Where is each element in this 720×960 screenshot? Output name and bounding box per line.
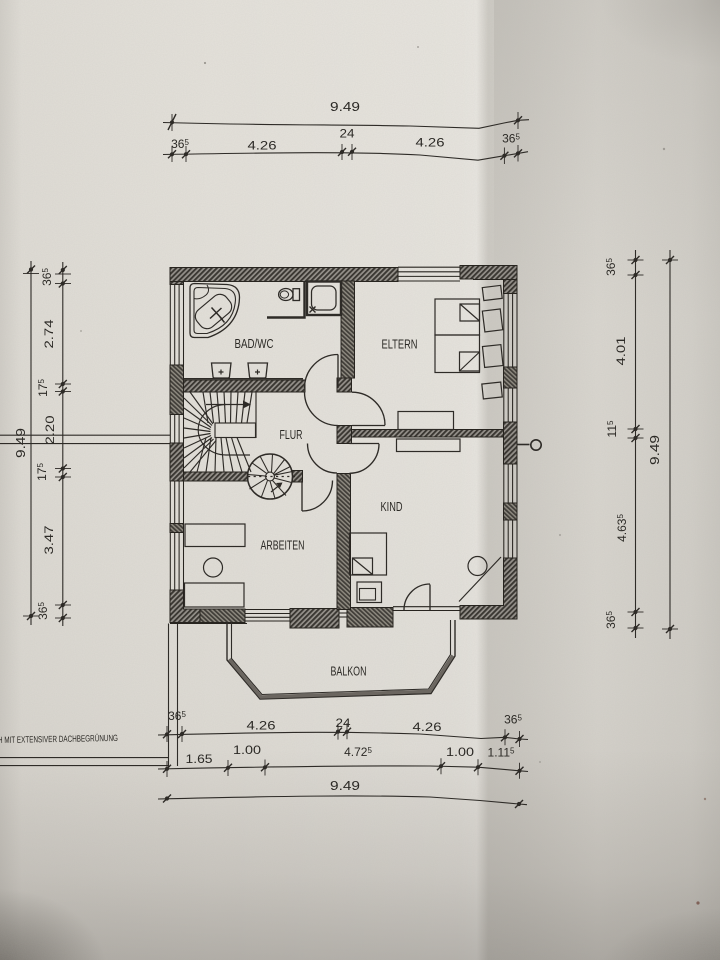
svg-text:FLUR: FLUR xyxy=(280,427,303,442)
svg-text:BALKON: BALKON xyxy=(331,664,367,679)
svg-text:9.49: 9.49 xyxy=(330,778,360,793)
svg-text:3.47: 3.47 xyxy=(42,525,56,554)
svg-text:4.01: 4.01 xyxy=(614,336,628,365)
svg-text:9.49: 9.49 xyxy=(330,99,360,114)
svg-text:4.26: 4.26 xyxy=(416,136,445,150)
svg-text:BAD/WC: BAD/WC xyxy=(235,336,274,351)
svg-text:9.49: 9.49 xyxy=(13,428,28,458)
svg-text:1.65: 1.65 xyxy=(186,752,213,766)
svg-text:2.20: 2.20 xyxy=(43,415,57,444)
svg-text:1.00: 1.00 xyxy=(446,745,474,759)
svg-text:1.00: 1.00 xyxy=(233,743,261,757)
svg-text:KIND: KIND xyxy=(381,499,403,514)
svg-text:ELTERN: ELTERN xyxy=(382,337,418,352)
svg-text:24: 24 xyxy=(336,716,351,730)
svg-text:24: 24 xyxy=(340,127,355,141)
svg-text:ARBEITEN: ARBEITEN xyxy=(261,538,305,553)
svg-text:4.26: 4.26 xyxy=(413,720,442,734)
svg-text:H MIT EXTENSIVER DACHBEGRÜNUNG: H MIT EXTENSIVER DACHBEGRÜNUNG xyxy=(0,733,118,745)
svg-text:2.74: 2.74 xyxy=(42,319,56,348)
svg-text:4.26: 4.26 xyxy=(247,719,276,733)
svg-text:4.26: 4.26 xyxy=(248,139,277,153)
svg-text:9.49: 9.49 xyxy=(647,435,662,465)
